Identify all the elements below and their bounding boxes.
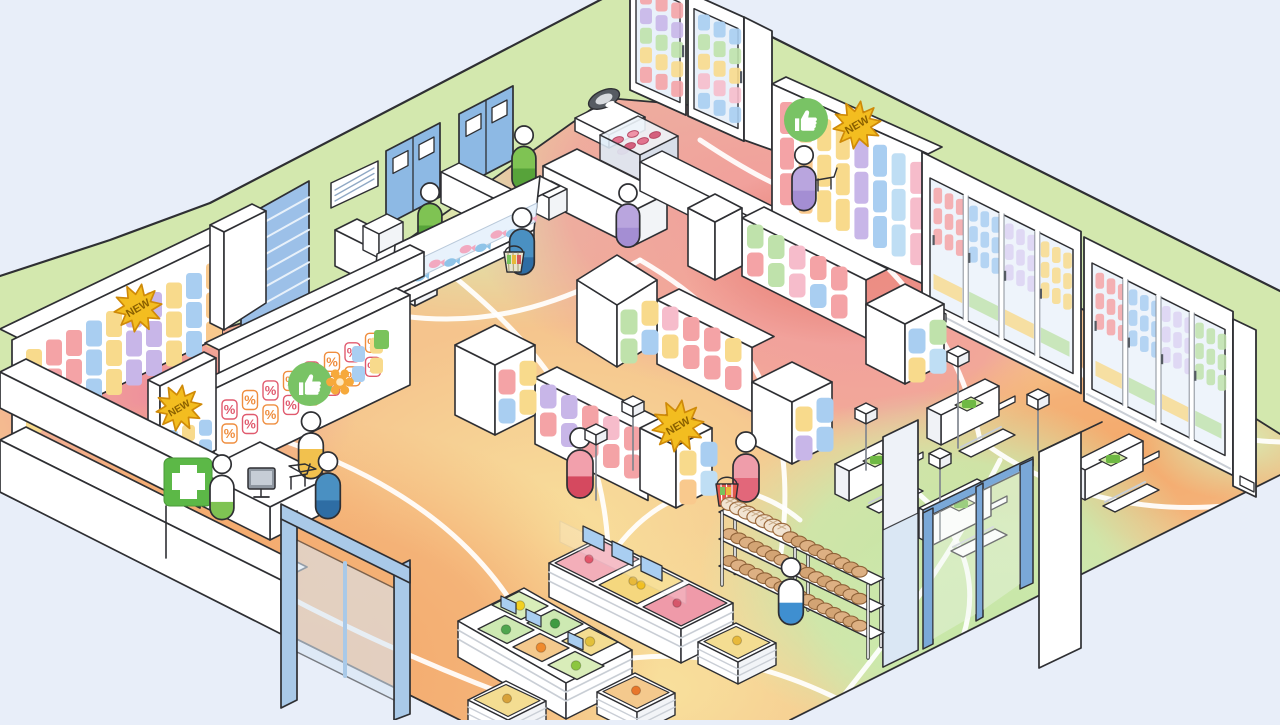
svg-text:%: %	[265, 407, 277, 422]
svg-text:%: %	[244, 393, 256, 408]
svg-text:%: %	[265, 383, 277, 398]
svg-text:%: %	[326, 354, 338, 369]
svg-text:%: %	[224, 426, 236, 441]
svg-text:%: %	[244, 417, 256, 432]
svg-text:%: %	[224, 402, 236, 417]
